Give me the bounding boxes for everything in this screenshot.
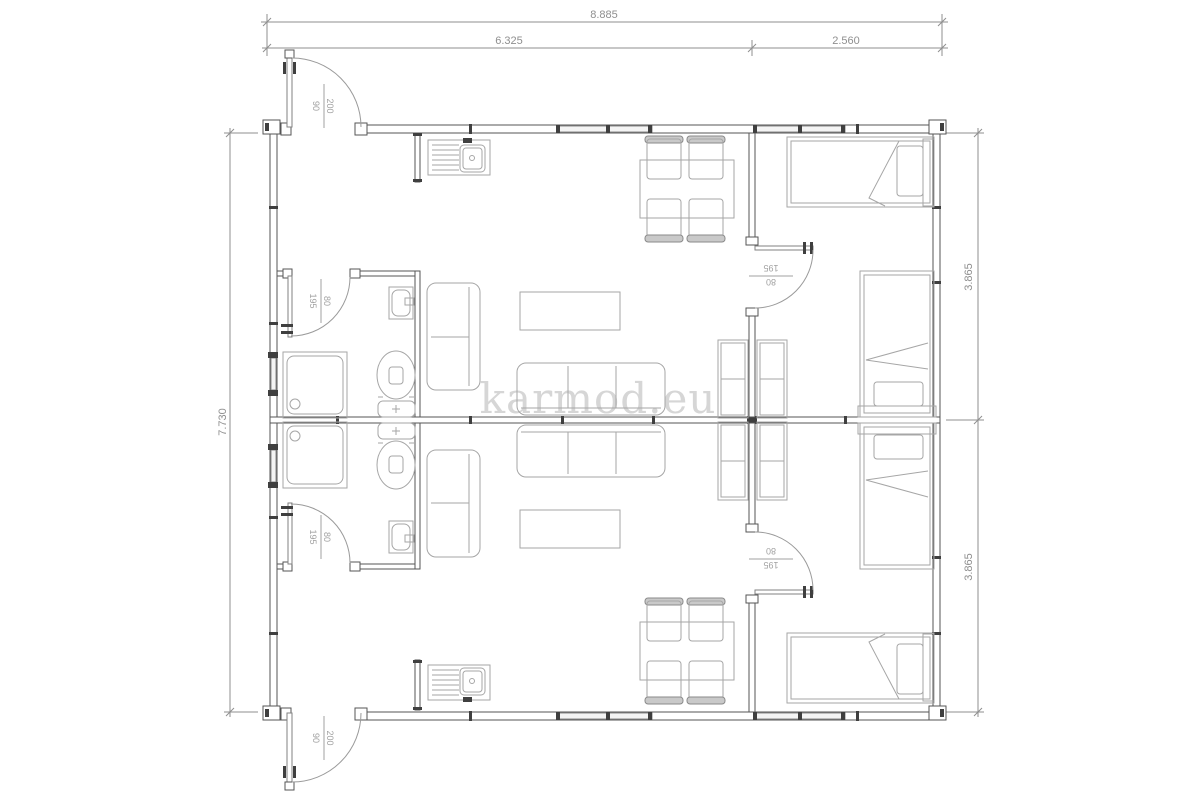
- door-swing-arc: [292, 58, 361, 127]
- dimension-right-upper: 3.865: [946, 128, 984, 425]
- sofa-two-seat-bottom: [427, 450, 480, 557]
- door-bathroom-top: 80 195: [281, 276, 350, 337]
- dim-label-left-span: 6.325: [495, 35, 523, 47]
- faucet-icon: [463, 697, 472, 702]
- floor-plan: 8.885 6.325 2.560 7.730 3.865 3.865: [0, 0, 1200, 800]
- kitchen-stub-wall-bottom: [413, 660, 422, 710]
- chair: [647, 199, 681, 239]
- toilet-bowl: [377, 441, 415, 489]
- window-bottom-living: [556, 712, 652, 720]
- dining-set-top: [640, 136, 734, 242]
- door-size-annotation: 80 195: [749, 263, 793, 287]
- svg-text:90: 90: [311, 101, 321, 111]
- bed-horizontal-top: [787, 137, 934, 207]
- dim-label-total-height: 7.730: [217, 408, 229, 436]
- dimension-left-height: 7.730: [217, 128, 258, 717]
- dimension-top-left: 6.325: [262, 35, 757, 56]
- shower-drain: [290, 399, 300, 409]
- washbasin-bottom: [389, 521, 414, 553]
- blanket-fold: [869, 634, 899, 699]
- chair: [689, 199, 723, 239]
- headboard: [858, 423, 936, 434]
- sofa-two-seat-top: [427, 283, 480, 390]
- pillow: [874, 435, 923, 459]
- headboard: [858, 406, 936, 417]
- floor-plan-canvas: 8.885 6.325 2.560 7.730 3.865 3.865: [0, 0, 1200, 800]
- dimension-right-lower: 3.865: [946, 415, 984, 717]
- faucet-icon: [463, 138, 472, 143]
- dining-set-bottom: [640, 598, 734, 704]
- chair: [647, 661, 681, 701]
- door-leaf: [288, 276, 292, 337]
- window-top-bedroom: [753, 125, 845, 133]
- coffee-table-bottom: [520, 510, 620, 548]
- door-swing-arc: [755, 250, 813, 308]
- svg-text:195: 195: [308, 529, 318, 544]
- svg-text:195: 195: [763, 560, 778, 570]
- svg-text:200: 200: [325, 730, 335, 745]
- svg-text:80: 80: [766, 546, 776, 556]
- shower-bottom: [283, 422, 347, 488]
- door-size-annotation: 200 90: [311, 84, 335, 128]
- door-leaf: [288, 503, 292, 564]
- toilet-bowl: [377, 351, 415, 399]
- watermark-text: karmod.eu: [480, 374, 717, 423]
- blanket-fold: [869, 141, 899, 206]
- svg-text:80: 80: [766, 277, 776, 287]
- toilet-top: [377, 351, 415, 417]
- dimension-top-total: 8.885: [261, 9, 948, 56]
- shower-top: [283, 352, 347, 418]
- door-bedroom-bottom: 195 80: [749, 532, 813, 598]
- dim-label-lower-room: 3.865: [963, 553, 975, 581]
- door-entrance-top: 200 90: [283, 50, 361, 128]
- dim-label-right-span: 2.560: [832, 35, 860, 47]
- dim-label-upper-room: 3.865: [963, 263, 975, 291]
- chair: [689, 661, 723, 701]
- bed-vertical-top: [858, 271, 936, 417]
- svg-text:195: 195: [308, 293, 318, 308]
- door-entrance-bottom: 200 90: [283, 713, 361, 790]
- chair: [689, 139, 723, 179]
- headboard: [923, 139, 934, 206]
- door-size-annotation: 80 195: [308, 279, 332, 323]
- dining-table: [640, 160, 734, 218]
- toilet-bottom: [377, 423, 415, 489]
- dining-table: [640, 622, 734, 680]
- window-top-living: [556, 125, 652, 133]
- coffee-table-top: [520, 292, 620, 330]
- chair: [689, 601, 723, 641]
- door-size-annotation: 80 195: [308, 515, 332, 559]
- sofa-three-seat-bottom: [517, 425, 665, 477]
- svg-text:90: 90: [311, 733, 321, 743]
- svg-text:80: 80: [322, 296, 332, 306]
- svg-text:195: 195: [763, 263, 778, 273]
- kitchen-sink-top: [428, 138, 490, 175]
- bed-horizontal-bottom: [787, 633, 934, 703]
- window-bottom-bedroom: [753, 712, 845, 720]
- dim-label-total-width: 8.885: [590, 9, 618, 21]
- headboard: [923, 634, 934, 701]
- door-bedroom-top: 80 195: [749, 242, 813, 308]
- door-leaf: [287, 57, 292, 127]
- door-leaf: [287, 713, 292, 783]
- door-size-annotation: 200 90: [311, 716, 335, 760]
- dimension-top-right: 2.560: [747, 35, 948, 52]
- svg-text:200: 200: [325, 98, 335, 113]
- door-swing-arc: [292, 713, 361, 782]
- kitchen-stub-wall-top: [413, 133, 422, 182]
- chair: [647, 601, 681, 641]
- pillow: [874, 382, 923, 406]
- blanket-fold: [866, 471, 928, 497]
- svg-text:80: 80: [322, 532, 332, 542]
- door-bathroom-bottom: 80 195: [281, 503, 350, 564]
- shower-drain: [290, 431, 300, 441]
- blanket-fold: [866, 343, 928, 369]
- chair: [647, 139, 681, 179]
- pillow: [897, 146, 923, 196]
- door-size-annotation: 195 80: [749, 546, 793, 570]
- pillow: [897, 644, 923, 694]
- kitchen-sink-bottom: [428, 665, 490, 702]
- washbasin-top: [389, 287, 414, 319]
- bed-vertical-bottom: [858, 423, 936, 569]
